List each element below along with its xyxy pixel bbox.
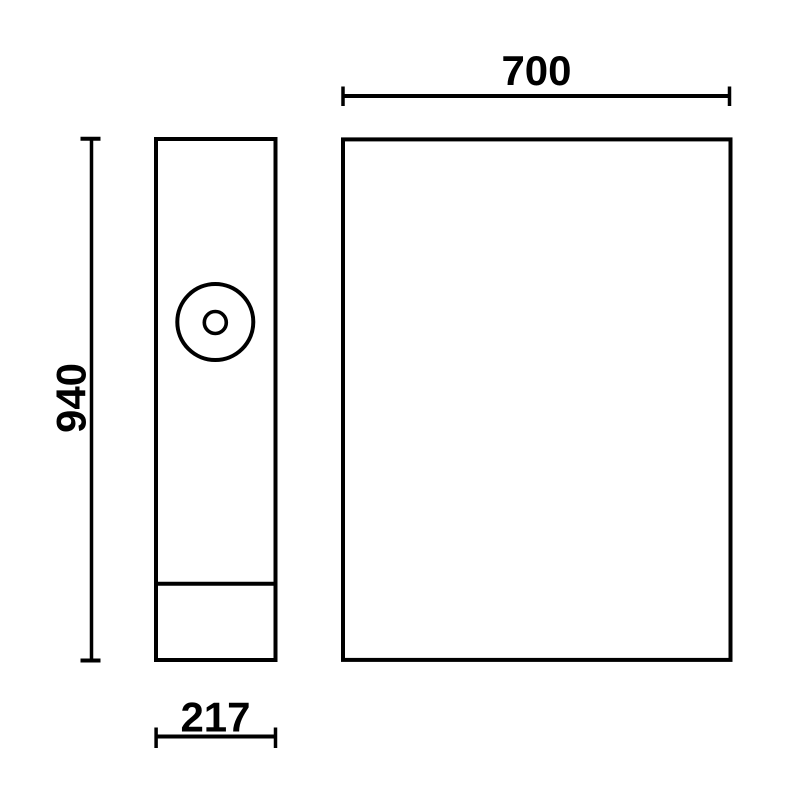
svg-text:940: 940	[48, 363, 95, 433]
svg-text:700: 700	[501, 47, 571, 94]
svg-text:217: 217	[180, 694, 250, 741]
